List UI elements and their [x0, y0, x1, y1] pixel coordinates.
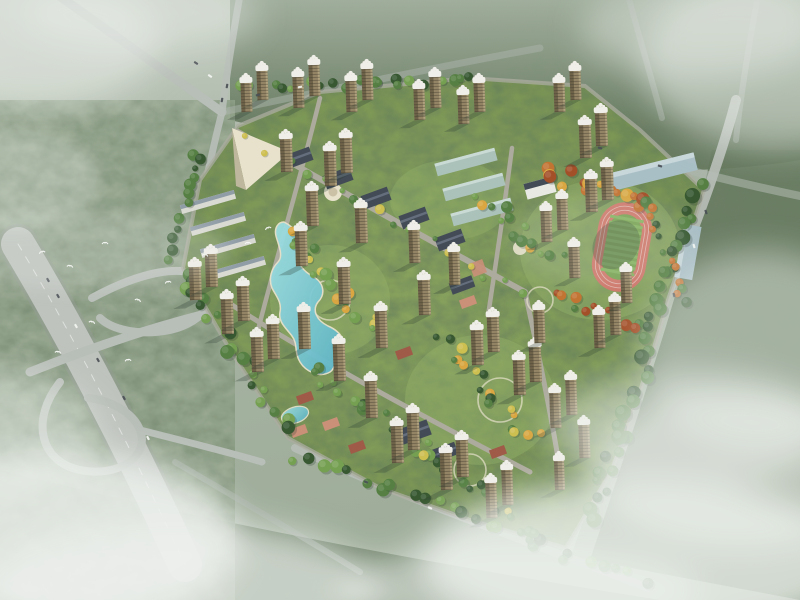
fog-layer [0, 0, 800, 600]
aerial-rendering [0, 0, 800, 600]
